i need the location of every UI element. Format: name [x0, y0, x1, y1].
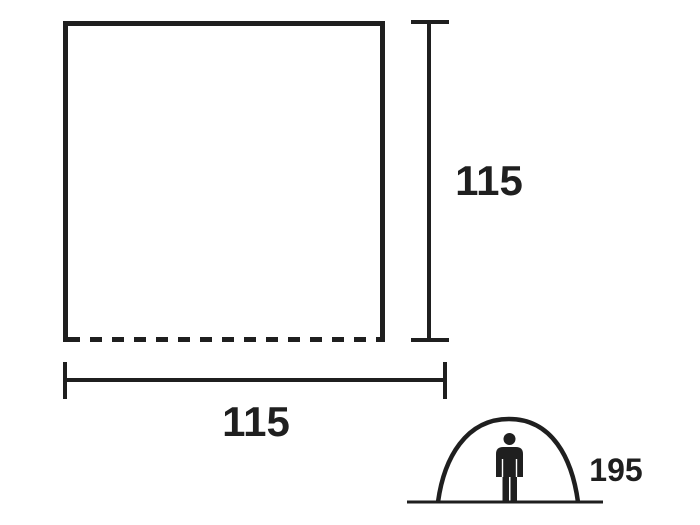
depth-dimension-line: [411, 20, 449, 342]
dimension-diagram: 115 115 195: [0, 0, 700, 525]
width-dimension-label: 115: [222, 401, 290, 443]
dimension-tick: [443, 362, 447, 399]
person-icon: [496, 433, 523, 502]
dimension-line: [63, 378, 447, 382]
dashed-front-edge: [68, 337, 380, 342]
dimension-tick: [411, 338, 449, 342]
dimension-line: [427, 20, 431, 342]
width-dimension-line: [63, 362, 447, 399]
tent-height-icon: [400, 408, 610, 508]
depth-dimension-label: 115: [455, 160, 523, 202]
tent-arch-icon: [400, 408, 610, 508]
floorplan-square: [63, 21, 385, 342]
